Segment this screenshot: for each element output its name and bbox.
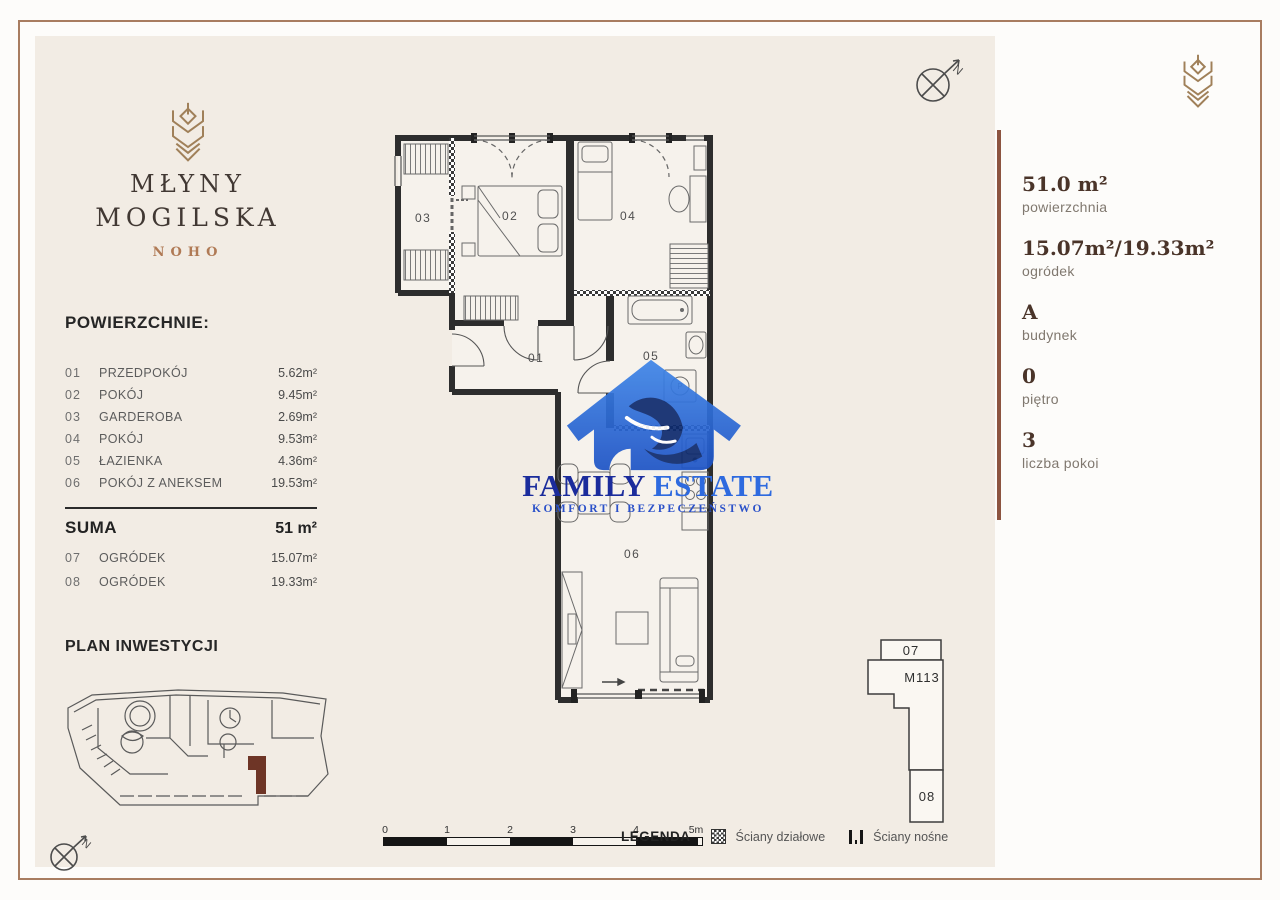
stat-value: 15.07m²/19.33m² — [1022, 236, 1252, 260]
room-label-03: 03 — [415, 211, 431, 225]
stat-value: 51.0 m² — [1022, 172, 1252, 196]
compass-north-label: N — [79, 837, 93, 851]
partition-wall-icon — [711, 829, 726, 844]
total-row: SUMA 51 m² — [65, 518, 317, 538]
brand-title-line1: MŁYNY — [65, 170, 311, 198]
wheat-logo-icon — [168, 98, 208, 171]
room-name: POKÓJ — [99, 388, 278, 402]
total-label: SUMA — [65, 518, 275, 538]
floor-plan-brochure: { "brand": { "title1": "MŁYNY", "title2"… — [0, 0, 1280, 900]
room-label-02: 02 — [502, 209, 518, 223]
compass-icon: N — [905, 52, 967, 108]
legend-partition-label: Ściany działowe — [736, 830, 826, 844]
stat-label: ogródek — [1022, 263, 1252, 279]
room-number: 04 — [65, 432, 99, 446]
unit-number-label: M113 — [904, 670, 940, 685]
room-number: 06 — [65, 476, 99, 490]
family-estate-wordmark: FAMILY ESTATE — [508, 468, 788, 504]
site-plan-drawing — [58, 686, 338, 818]
room-area: 4.36m² — [278, 454, 317, 468]
family-estate-logo-icon — [558, 356, 744, 477]
stat-label: powierzchnia — [1022, 199, 1252, 215]
stat-label: piętro — [1022, 391, 1252, 407]
room-name: ŁAZIENKA — [99, 454, 278, 468]
areas-heading: POWIERZCHNIE: — [65, 313, 209, 333]
room-area: 5.62m² — [278, 366, 317, 380]
garden-area: 15.07m² — [271, 551, 317, 565]
garden-number: 08 — [65, 575, 99, 589]
stat-label: budynek — [1022, 327, 1252, 343]
table-divider — [65, 507, 317, 509]
areas-table: 01 PRZEDPOKÓJ 5.62m² 02 POKÓJ 9.45m² 03 … — [65, 366, 317, 498]
legend-title: LEGENDA — [621, 829, 691, 844]
room-area: 2.69m² — [278, 410, 317, 424]
garden-number: 07 — [65, 551, 99, 565]
site-plan-heading: PLAN INWESTYCJI — [65, 638, 218, 656]
gardens-table: 07 OGRÓDEK 15.07m² 08 OGRÓDEK 19.33m² — [65, 551, 317, 599]
sidebar-accent-line — [997, 130, 1001, 520]
room-area: 9.53m² — [278, 432, 317, 446]
table-row: 05 ŁAZIENKA 4.36m² — [65, 454, 317, 476]
table-row: 01 PRZEDPOKÓJ 5.62m² — [65, 366, 317, 388]
scale-tick: 1 — [444, 824, 450, 836]
room-number: 05 — [65, 454, 99, 468]
stat-value: 0 — [1022, 364, 1252, 388]
stat-rooms: 3 liczba pokoi — [1022, 428, 1252, 471]
apartment-stats: 51.0 m² powierzchnia 15.07m²/19.33m² ogr… — [1022, 172, 1252, 492]
garden-08-label: 08 — [919, 789, 935, 804]
table-row: 02 POKÓJ 9.45m² — [65, 388, 317, 410]
garden-name: OGRÓDEK — [99, 575, 271, 589]
table-row: 04 POKÓJ 9.53m² — [65, 432, 317, 454]
stat-building: A budynek — [1022, 300, 1252, 343]
room-label-06: 06 — [624, 547, 640, 561]
room-area: 19.53m² — [271, 476, 317, 490]
scale-tick: 3 — [570, 824, 576, 836]
stat-label: liczba pokoi — [1022, 455, 1252, 471]
watermark-word-family: FAMILY — [522, 468, 644, 503]
total-value: 51 m² — [275, 520, 317, 538]
room-number: 03 — [65, 410, 99, 424]
brand-title-line2: MOGILSKA — [65, 203, 311, 232]
table-row: 03 GARDEROBA 2.69m² — [65, 410, 317, 432]
watermark-tagline: KOMFORT I BEZPECZEŃSTWO — [508, 503, 788, 515]
watermark-word-estate: ESTATE — [653, 468, 774, 503]
room-area: 9.45m² — [278, 388, 317, 402]
table-row: 08 OGRÓDEK 19.33m² — [65, 575, 317, 599]
wheat-icon-small — [1180, 50, 1216, 117]
table-row: 07 OGRÓDEK 15.07m² — [65, 551, 317, 575]
compass-north-label: N — [950, 62, 966, 78]
unit-locator-diagram: 07 M113 08 — [858, 632, 958, 837]
compass-icon: N — [44, 828, 96, 876]
stat-area: 51.0 m² powierzchnia — [1022, 172, 1252, 215]
room-name: GARDEROBA — [99, 410, 278, 424]
stat-value: A — [1022, 300, 1252, 324]
garden-name: OGRÓDEK — [99, 551, 271, 565]
brand-subtitle: NOHO — [65, 245, 311, 260]
room-number: 02 — [65, 388, 99, 402]
room-name: POKÓJ Z ANEKSEM — [99, 476, 271, 490]
garden-07-label: 07 — [903, 643, 919, 658]
garden-area: 19.33m² — [271, 575, 317, 589]
stat-floor: 0 piętro — [1022, 364, 1252, 407]
stat-garden: 15.07m²/19.33m² ogródek — [1022, 236, 1252, 279]
scale-tick: 0 — [382, 824, 388, 836]
scale-tick: 2 — [507, 824, 513, 836]
room-name: PRZEDPOKÓJ — [99, 366, 278, 380]
room-label-01: 01 — [528, 351, 544, 365]
stat-value: 3 — [1022, 428, 1252, 452]
room-name: POKÓJ — [99, 432, 278, 446]
room-number: 01 — [65, 366, 99, 380]
table-row: 06 POKÓJ Z ANEKSEM 19.53m² — [65, 476, 317, 498]
room-label-04: 04 — [620, 209, 636, 223]
development-name: MŁYNY MOGILSKA NOHO — [65, 170, 311, 260]
